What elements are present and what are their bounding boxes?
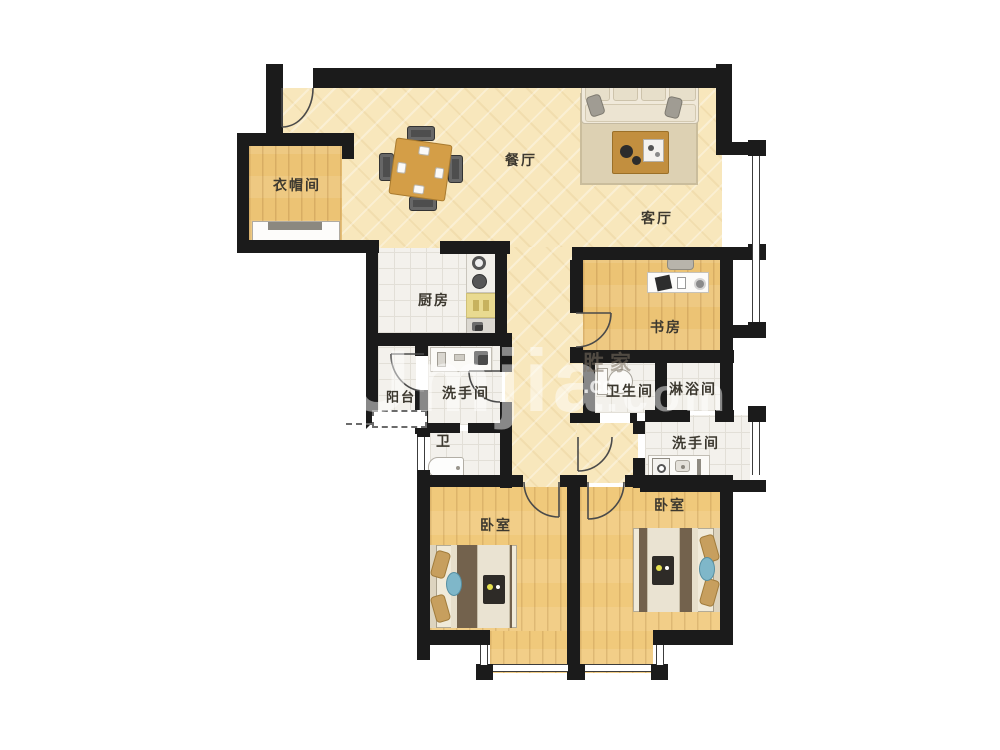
room-label-toilet-small: 卫	[436, 431, 452, 451]
door-arc	[588, 482, 624, 519]
room-label-study: 书房	[650, 317, 682, 337]
room-label-bedroom-left: 卧室	[480, 515, 512, 535]
door-arc	[578, 437, 612, 471]
room-label-kitchen: 厨房	[418, 290, 450, 310]
door-arc	[282, 88, 313, 127]
room-label-shower: 淋浴间	[669, 379, 717, 399]
room-label-living: 客厅	[641, 208, 673, 228]
room-label-bedroom-right: 卧室	[654, 495, 686, 515]
door-arc	[391, 354, 424, 391]
room-label-bathroom: 卫生间	[606, 381, 654, 401]
room-label-cloakroom: 衣帽间	[273, 175, 321, 195]
floor-plan-canvas: 衣帽间 餐厅 客厅 厨房 书房 阳台 洗手间 卫 卫生间 淋浴间 洗手间 卧室 …	[0, 0, 1000, 750]
door-arc	[576, 313, 611, 347]
room-label-balcony: 阳台	[386, 387, 416, 406]
door-arc	[524, 482, 559, 517]
door-swing-overlay	[0, 0, 1000, 750]
room-label-washroom-mid: 洗手间	[442, 383, 490, 403]
room-label-dining: 餐厅	[505, 150, 537, 170]
room-label-washroom-right: 洗手间	[672, 433, 720, 453]
